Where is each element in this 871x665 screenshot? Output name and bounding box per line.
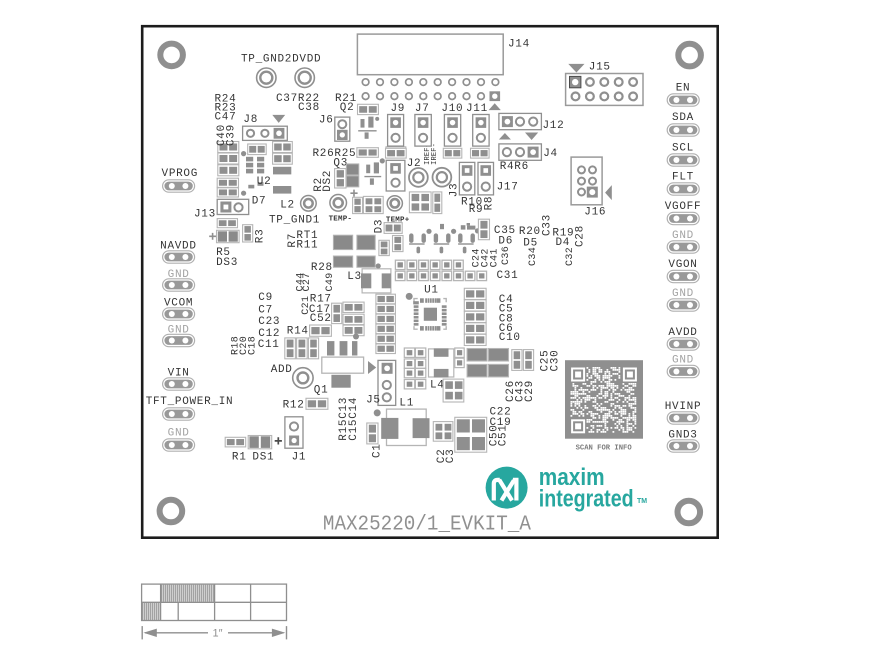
- svg-text:R12: R12: [283, 399, 305, 411]
- svg-text:R28: R28: [311, 262, 333, 274]
- svg-text:C47: C47: [215, 112, 237, 124]
- svg-text:C23: C23: [258, 316, 280, 328]
- svg-text:SCL: SCL: [672, 143, 694, 155]
- svg-text:C10: C10: [499, 332, 521, 344]
- svg-text:FLT: FLT: [672, 172, 694, 184]
- svg-text:C51: C51: [498, 424, 510, 446]
- svg-text:ADD: ADD: [271, 364, 293, 376]
- svg-text:C30: C30: [549, 350, 561, 372]
- svg-text:L1: L1: [399, 397, 414, 409]
- svg-text:C7: C7: [258, 305, 273, 317]
- svg-text:C12: C12: [258, 328, 280, 340]
- svg-text:L2: L2: [280, 199, 295, 211]
- svg-text:R11: R11: [296, 240, 318, 252]
- svg-text:Q2: Q2: [340, 102, 355, 114]
- svg-text:integrated: integrated: [539, 485, 634, 512]
- svg-text:C49: C49: [325, 272, 336, 291]
- svg-text:C9: C9: [258, 292, 273, 304]
- svg-text:C31: C31: [497, 270, 519, 282]
- svg-text:VGON: VGON: [668, 259, 697, 271]
- svg-text:C28: C28: [575, 225, 587, 247]
- svg-text:J9: J9: [391, 103, 406, 115]
- svg-text:R8: R8: [484, 196, 496, 211]
- svg-text:Q1: Q1: [314, 385, 329, 397]
- svg-text:TFT_POWER_IN: TFT_POWER_IN: [146, 396, 234, 408]
- svg-text:R14: R14: [287, 326, 309, 338]
- svg-text:R9: R9: [469, 204, 484, 216]
- svg-text:C41: C41: [489, 248, 500, 267]
- svg-text:U2: U2: [257, 176, 272, 188]
- svg-text:L3: L3: [347, 271, 362, 283]
- svg-text:J8: J8: [243, 114, 258, 126]
- svg-text:J6: J6: [319, 115, 334, 127]
- svg-text:SDA: SDA: [672, 112, 694, 124]
- svg-text:TEMP-: TEMP-: [329, 216, 353, 224]
- svg-text:U1: U1: [424, 285, 439, 297]
- svg-text:R20: R20: [519, 226, 541, 238]
- svg-text:J5: J5: [366, 394, 381, 406]
- svg-text:J3: J3: [448, 183, 460, 198]
- svg-text:C27: C27: [302, 272, 313, 291]
- svg-text:1″: 1″: [213, 628, 223, 640]
- svg-text:MAX25220/1_EVKIT_A: MAX25220/1_EVKIT_A: [323, 513, 531, 536]
- svg-text:J11: J11: [466, 103, 488, 115]
- svg-text:C34: C34: [528, 247, 539, 266]
- svg-text:C3: C3: [445, 449, 457, 464]
- svg-text:C1: C1: [372, 443, 384, 458]
- svg-text:IREF-: IREF-: [431, 143, 439, 165]
- svg-text:DS2: DS2: [322, 170, 334, 192]
- svg-text:TP_GND1: TP_GND1: [269, 215, 320, 227]
- svg-text:J10: J10: [441, 103, 463, 115]
- svg-text:C18: C18: [248, 336, 259, 355]
- svg-text:L4: L4: [430, 380, 445, 392]
- svg-text:J12: J12: [543, 120, 565, 132]
- svg-text:J16: J16: [584, 207, 606, 219]
- svg-text:J1: J1: [292, 451, 307, 463]
- svg-text:C52: C52: [310, 313, 332, 325]
- svg-text:C38: C38: [298, 102, 320, 114]
- svg-text:R3: R3: [255, 229, 267, 244]
- svg-text:R1: R1: [232, 451, 247, 463]
- svg-text:VPROG: VPROG: [162, 168, 199, 180]
- svg-text:C32: C32: [565, 247, 576, 266]
- svg-text:J17: J17: [497, 182, 519, 194]
- svg-text:VGOFF: VGOFF: [665, 201, 702, 213]
- svg-text:C29: C29: [524, 380, 536, 402]
- svg-text:C36: C36: [501, 246, 512, 265]
- svg-text:C39: C39: [226, 124, 238, 146]
- svg-text:D7: D7: [252, 195, 267, 207]
- svg-text:EN: EN: [676, 83, 691, 95]
- svg-text:J14: J14: [508, 39, 530, 51]
- svg-text:Q3: Q3: [333, 157, 348, 169]
- svg-text:J13: J13: [194, 209, 216, 221]
- svg-text:DS3: DS3: [216, 257, 238, 269]
- svg-text:TP_GND2DVDD: TP_GND2DVDD: [241, 54, 321, 66]
- svg-text:R4R6: R4R6: [500, 161, 529, 173]
- svg-text:GND: GND: [168, 428, 190, 440]
- svg-text:C11: C11: [258, 339, 280, 351]
- svg-text:C15C14: C15C14: [348, 397, 360, 441]
- svg-text:J4: J4: [543, 148, 558, 160]
- svg-text:TM: TM: [637, 498, 647, 505]
- svg-text:J15: J15: [589, 61, 611, 73]
- svg-text:SCAN FOR INFO: SCAN FOR INFO: [576, 444, 633, 452]
- svg-text:DS1: DS1: [252, 451, 274, 463]
- svg-text:J7: J7: [415, 103, 430, 115]
